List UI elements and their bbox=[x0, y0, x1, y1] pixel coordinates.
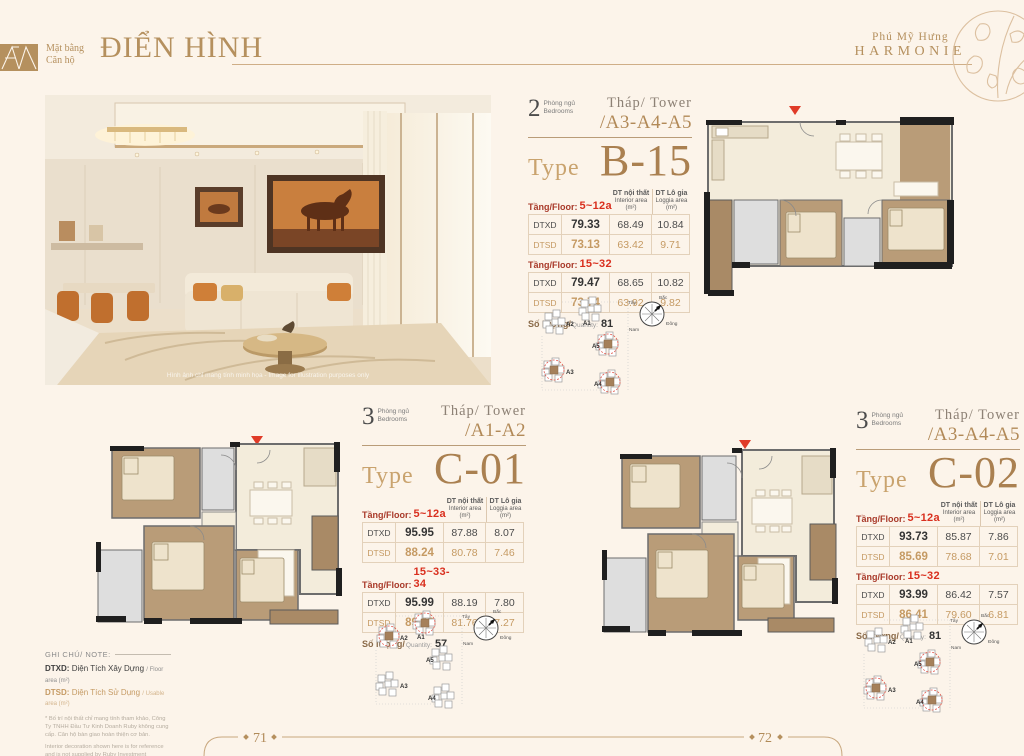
svg-text:A1: A1 bbox=[583, 321, 591, 327]
row-label: DTXD bbox=[856, 526, 890, 547]
cell-interior: 68.49 bbox=[610, 214, 652, 235]
svg-text:A2: A2 bbox=[888, 640, 896, 646]
cell-total: 95.95 bbox=[396, 522, 444, 543]
cell-interior: 68.65 bbox=[610, 272, 652, 293]
cell-total: 88.24 bbox=[396, 543, 444, 563]
type-label: Type bbox=[528, 156, 580, 180]
col-header-loggia: DT Lô giaLoggia area(m²) bbox=[980, 501, 1018, 527]
type-row: Type C-01 bbox=[362, 447, 526, 491]
svg-text:A3: A3 bbox=[400, 684, 408, 690]
bedroom-count: 2 Phòng ngủBedrooms bbox=[528, 96, 575, 121]
notes-block: GHI CHÚ/ NOTE: DTXD: Diện Tích Xây Dựng … bbox=[45, 650, 171, 756]
bedroom-number: 2 bbox=[528, 96, 541, 121]
bedroom-number: 3 bbox=[362, 404, 375, 429]
page-number-left: 71 bbox=[253, 731, 267, 746]
svg-text:Bắc: Bắc bbox=[493, 608, 502, 615]
cell-total: 93.99 bbox=[890, 584, 938, 605]
svg-text:A2: A2 bbox=[566, 322, 574, 328]
note-dtxd: DTXD: Diện Tích Xây Dựng / Floor area (m… bbox=[45, 664, 171, 686]
footer-ornament: 71 72 bbox=[198, 724, 848, 756]
tower-label: Tháp/ Tower bbox=[600, 96, 692, 111]
cell-loggia: 7.57 bbox=[980, 584, 1018, 605]
svg-text:A1: A1 bbox=[905, 639, 913, 645]
col-header-interior: DT nội thấtInterior area(m²) bbox=[444, 497, 486, 523]
tower-names: /A3-A4-A5 bbox=[600, 113, 692, 132]
fine-print: * Bố trí nội thất chỉ mang tính tham khả… bbox=[45, 715, 171, 756]
svg-text:A4: A4 bbox=[428, 696, 436, 702]
header-rule bbox=[232, 64, 972, 65]
row-label: DTXD bbox=[528, 214, 562, 235]
svg-text:A4: A4 bbox=[594, 382, 602, 388]
bedroom-count: 3 Phòng ngủBedrooms bbox=[856, 408, 903, 433]
row-label: DTXD bbox=[856, 584, 890, 605]
tower-info: Tháp/ Tower /A3-A4-A5 bbox=[600, 96, 692, 132]
svg-text:A2: A2 bbox=[400, 636, 408, 642]
tower-label: Tháp/ Tower bbox=[928, 408, 1020, 423]
cell-interior: 87.88 bbox=[444, 522, 486, 543]
type-row: Type B-15 bbox=[528, 139, 692, 183]
logo-icon bbox=[0, 44, 38, 76]
row-label: DTSD bbox=[362, 543, 396, 563]
type-name: C-02 bbox=[928, 451, 1020, 495]
svg-text:Bắc: Bắc bbox=[981, 612, 990, 619]
svg-text:Bắc: Bắc bbox=[659, 294, 668, 301]
entrance-marker-icon bbox=[739, 440, 751, 449]
cell-interior: 78.68 bbox=[938, 547, 980, 567]
cell-loggia: 7.01 bbox=[980, 547, 1018, 567]
col-header-interior: DT nội thấtInterior area(m²) bbox=[610, 189, 652, 215]
cell-total: 93.73 bbox=[890, 526, 938, 547]
svg-text:Nam: Nam bbox=[463, 641, 473, 647]
tower-info: Tháp/ Tower /A3-A4-A5 bbox=[928, 408, 1020, 444]
cell-interior: 85.87 bbox=[938, 526, 980, 547]
floor-range: Tầng/Floor:5~12a bbox=[528, 189, 610, 215]
svg-text:A1: A1 bbox=[417, 635, 425, 641]
tower-label: Tháp/ Tower bbox=[441, 404, 526, 419]
page-number-right: 72 bbox=[758, 731, 772, 746]
row-label: DTSD bbox=[528, 235, 562, 255]
floorplan-b15 bbox=[688, 96, 970, 302]
floorplan-c02 bbox=[596, 432, 854, 646]
cell-interior: 86.42 bbox=[938, 584, 980, 605]
col-header-loggia: DT Lô giaLoggia area(m²) bbox=[486, 497, 524, 523]
photo-watermark: Hình ảnh chỉ mang tính minh họa - Image … bbox=[45, 372, 491, 379]
cell-loggia: 10.82 bbox=[652, 272, 690, 293]
col-header-loggia: DT Lô giaLoggia area(m²) bbox=[652, 189, 690, 215]
keyplan-c02: A1A2 A3A4 A5 BắcĐông NamTây bbox=[850, 610, 1002, 724]
page-title: ĐIỂN HÌNH bbox=[100, 31, 263, 65]
floor-range: Tầng/Floor:15~32 bbox=[856, 567, 938, 584]
cell-total: 79.47 bbox=[562, 272, 610, 293]
cell-interior: 63.42 bbox=[610, 235, 652, 255]
tower-names: /A3-A4-A5 bbox=[928, 425, 1020, 444]
svg-text:Đông: Đông bbox=[988, 639, 1000, 645]
floor-range: Tầng/Floor:5~12a bbox=[362, 497, 444, 523]
type-name: B-15 bbox=[600, 139, 692, 183]
compass-icon bbox=[962, 620, 986, 644]
svg-text:Đông: Đông bbox=[500, 635, 512, 641]
row-label: DTXD bbox=[362, 522, 396, 543]
row-label: DTXD bbox=[528, 272, 562, 293]
floral-ornament-icon bbox=[940, 4, 1024, 110]
brochure-page: Mặt bằngCăn hộ ĐIỂN HÌNH Phú Mỹ Hưng HAR… bbox=[0, 0, 1024, 756]
floor-range: Tầng/Floor:5~12a bbox=[856, 501, 938, 527]
type-label: Type bbox=[856, 468, 908, 492]
cell-loggia: 7.46 bbox=[486, 543, 524, 563]
svg-text:Nam: Nam bbox=[951, 645, 961, 651]
cell-total: 79.33 bbox=[562, 214, 610, 235]
svg-text:A5: A5 bbox=[592, 344, 600, 350]
entrance-marker-icon bbox=[789, 106, 801, 115]
svg-text:A3: A3 bbox=[888, 688, 896, 694]
svg-text:A5: A5 bbox=[426, 658, 434, 664]
area-table: Tầng/Floor:5~12a DT nội thấtInterior are… bbox=[856, 501, 1018, 626]
cell-loggia: 7.86 bbox=[980, 526, 1018, 547]
tower-names: /A1-A2 bbox=[441, 421, 526, 440]
row-label: DTSD bbox=[856, 547, 890, 567]
floorplan-c01 bbox=[90, 430, 362, 632]
note-dtsd: DTSD: Diện Tích Sử Dụng / Usable area (m… bbox=[45, 688, 171, 710]
notes-rule bbox=[115, 654, 171, 655]
cell-total: 73.13 bbox=[562, 235, 610, 255]
living-room-photo: Hình ảnh chỉ mang tính minh họa - Image … bbox=[45, 95, 491, 385]
col-header-interior: DT nội thấtInterior area(m²) bbox=[938, 501, 980, 527]
svg-text:Đông: Đông bbox=[666, 321, 678, 327]
svg-text:A5: A5 bbox=[914, 662, 922, 668]
svg-text:Tây: Tây bbox=[462, 614, 471, 620]
floor-range: Tầng/Floor:15~33-34 bbox=[362, 563, 444, 592]
page-subtitle: Mặt bằngCăn hộ bbox=[46, 43, 84, 66]
type-label: Type bbox=[362, 464, 414, 488]
bedroom-count: 3 Phòng ngủBedrooms bbox=[362, 404, 409, 429]
svg-text:A4: A4 bbox=[916, 700, 924, 706]
bedroom-labels: Phòng ngủBedrooms bbox=[872, 412, 903, 428]
svg-text:Tây: Tây bbox=[950, 618, 959, 624]
bedroom-labels: Phòng ngủBedrooms bbox=[544, 100, 575, 116]
notes-heading: GHI CHÚ/ NOTE: bbox=[45, 650, 111, 659]
keyplan-c01: A1A2 A3A4 A5 BắcĐông NamTây bbox=[362, 606, 514, 720]
cell-loggia: 10.84 bbox=[652, 214, 690, 235]
type-name: C-01 bbox=[434, 447, 526, 491]
svg-text:Tây: Tây bbox=[628, 300, 637, 306]
floor-range: Tầng/Floor:15~32 bbox=[528, 255, 610, 272]
tower-info: Tháp/ Tower /A1-A2 bbox=[441, 404, 526, 440]
compass-icon bbox=[474, 616, 498, 640]
compass-icon bbox=[640, 302, 664, 326]
svg-text:A3: A3 bbox=[566, 370, 574, 376]
cell-loggia: 8.07 bbox=[486, 522, 524, 543]
keyplan-b15: A1A2 A3A4 A5 BắcĐông NamTây bbox=[528, 292, 680, 406]
cell-loggia: 9.71 bbox=[652, 235, 690, 255]
cell-interior: 80.78 bbox=[444, 543, 486, 563]
svg-text:Nam: Nam bbox=[629, 327, 639, 333]
bedroom-number: 3 bbox=[856, 408, 869, 433]
type-row: Type C-02 bbox=[856, 451, 1020, 495]
cell-total: 85.69 bbox=[890, 547, 938, 567]
unit-panel-c02: 3 Phòng ngủBedrooms Tháp/ Tower /A3-A4-A… bbox=[856, 408, 1020, 642]
bedroom-labels: Phòng ngủBedrooms bbox=[378, 408, 409, 424]
